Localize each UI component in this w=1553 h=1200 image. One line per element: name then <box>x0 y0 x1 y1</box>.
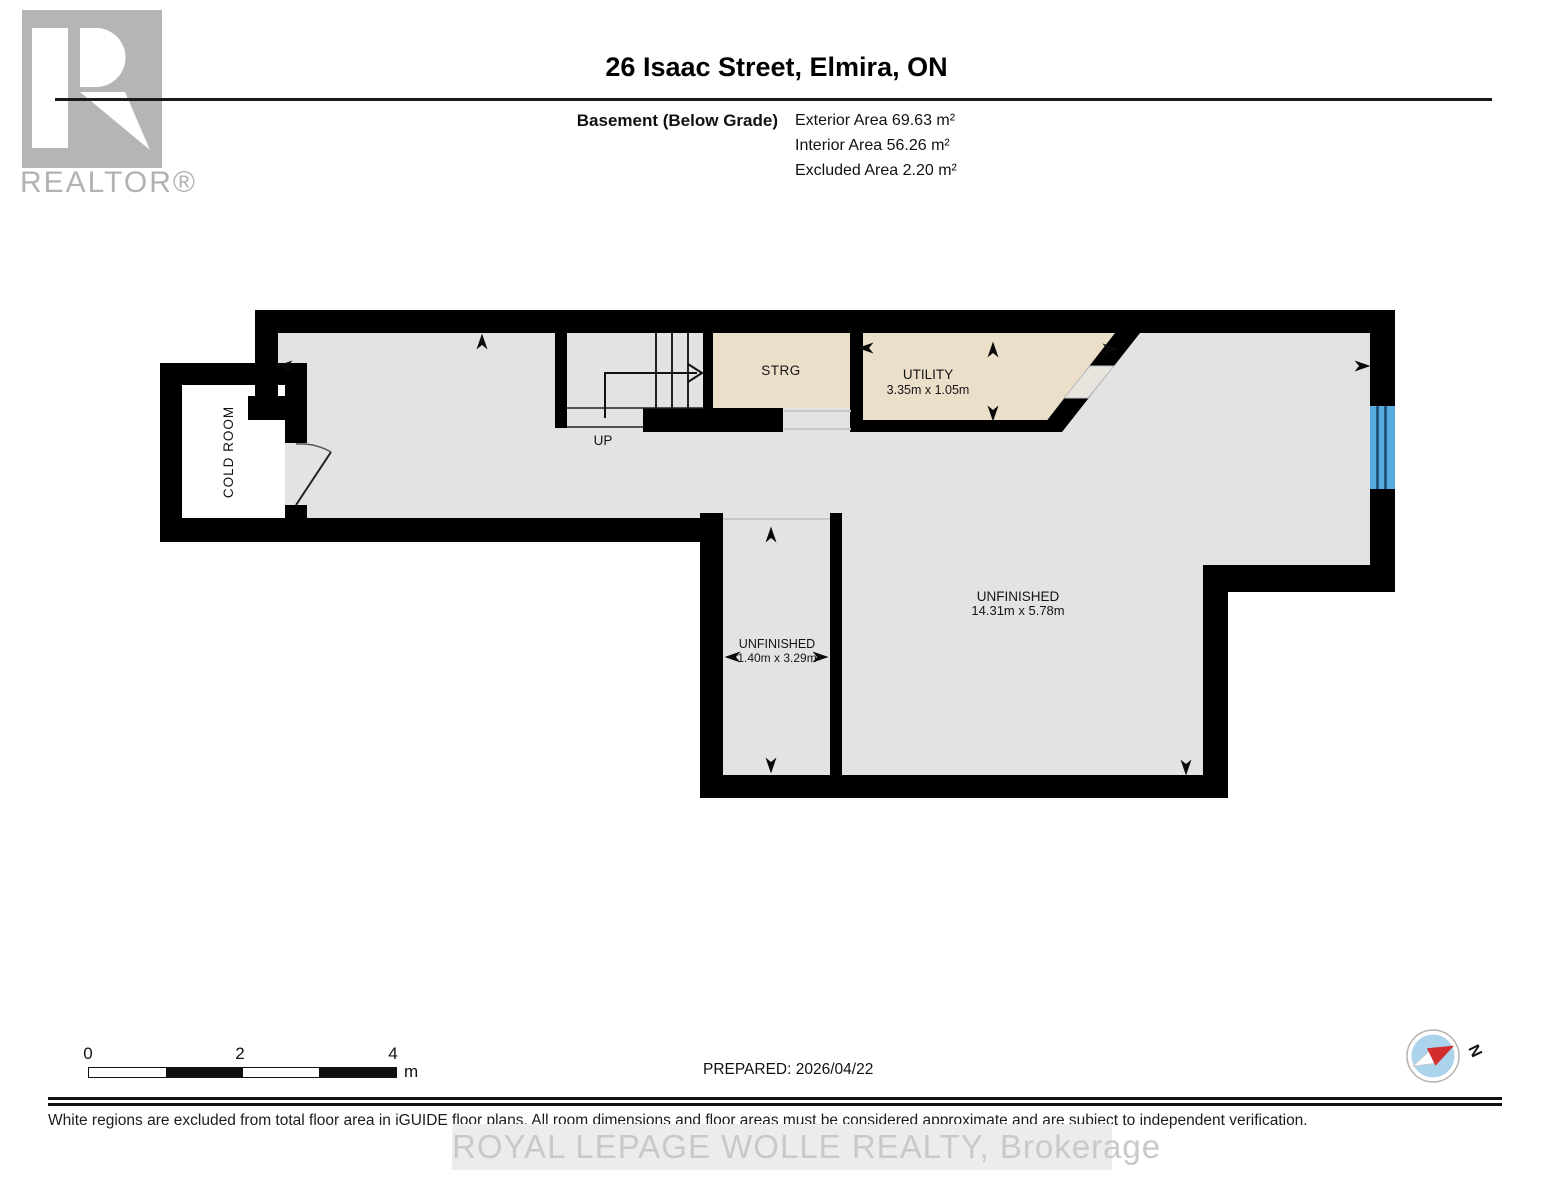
window-icon <box>1370 406 1395 489</box>
wall-bottom <box>700 775 1228 798</box>
scale-segment <box>166 1068 243 1077</box>
compass-icon: N <box>1407 1030 1485 1082</box>
main-room-label: UNFINISHED <box>977 589 1060 604</box>
wall-storage-left <box>703 333 713 408</box>
wall-coldroom-left <box>160 363 182 542</box>
scale-tick-0: 0 <box>81 1044 95 1064</box>
cold-room-label: COLD ROOM <box>221 406 236 498</box>
scale-segment <box>89 1068 166 1077</box>
wall-coldroom-right-lower <box>285 505 307 518</box>
wall-right-upper <box>1370 333 1395 406</box>
footer-divider <box>48 1103 1502 1106</box>
wall-step-block <box>248 396 307 420</box>
wall-under-stairs <box>643 408 783 432</box>
footer-divider <box>48 1097 1502 1100</box>
brokerage-watermark: ROYAL LEPAGE WOLLE REALTY, Brokerage <box>452 1124 1112 1170</box>
wall-left-bottom <box>160 518 723 542</box>
stairs-up-label: UP <box>594 433 613 448</box>
floorplan-page: REALTOR® 26 Isaac Street, Elmira, ON Bas… <box>0 0 1553 1200</box>
wall-hall-left <box>700 513 723 798</box>
scale-segment <box>243 1068 320 1077</box>
wall-step-horizontal <box>1203 565 1395 592</box>
storage-label: STRG <box>761 363 801 378</box>
scale-segment <box>319 1068 396 1077</box>
scale-bar <box>88 1067 397 1078</box>
wall-utility-bottom <box>850 420 1062 432</box>
floorplan-drawing: COLD ROOM STRG UTILITY 3.35m x 1.05m UNF… <box>0 0 1553 1200</box>
compass-north-label: N <box>1464 1042 1484 1060</box>
wall-stair-left <box>555 333 567 428</box>
hall-label: UNFINISHED <box>739 637 815 651</box>
scale-tick-4: 4 <box>386 1044 400 1064</box>
hall-dims: 1.40m x 3.29m <box>737 651 816 665</box>
prepared-date: PREPARED: 2026/04/22 <box>703 1061 873 1079</box>
wall-top <box>255 310 1395 333</box>
wall-hall-right <box>830 513 842 775</box>
main-room-dims: 14.31m x 5.78m <box>971 603 1064 618</box>
scale-unit-label: m <box>404 1062 418 1082</box>
utility-label: UTILITY <box>903 367 953 382</box>
utility-dims: 3.35m x 1.05m <box>887 383 970 397</box>
scale-tick-2: 2 <box>233 1044 247 1064</box>
wall-step-vertical <box>1203 565 1228 798</box>
